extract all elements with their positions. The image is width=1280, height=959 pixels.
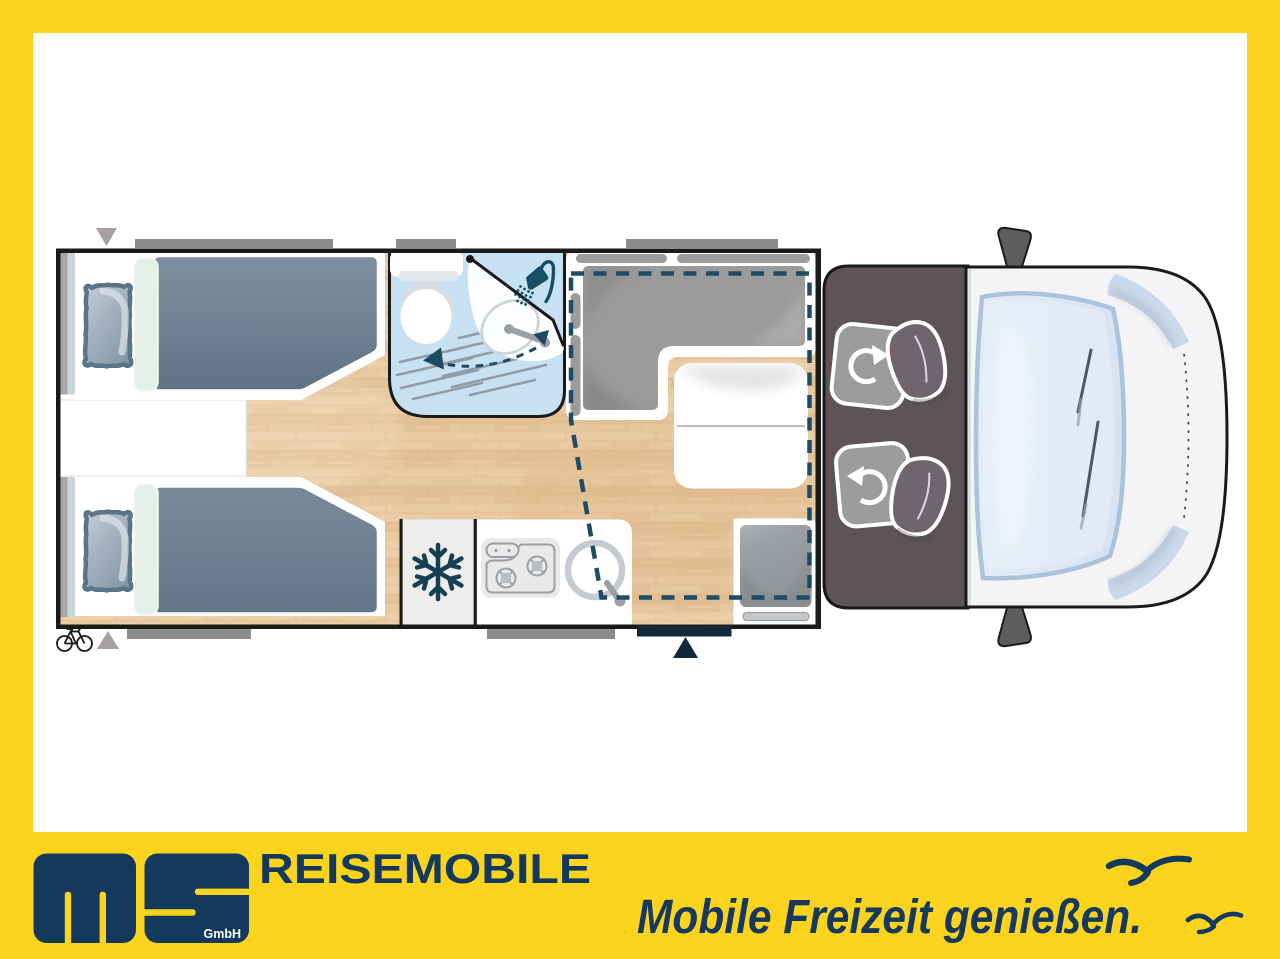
svg-text:Mobile Freizeit genießen.: Mobile Freizeit genießen. <box>637 891 1142 944</box>
svg-text:GmbH: GmbH <box>204 927 242 941</box>
svg-text:REISEMOBILE: REISEMOBILE <box>259 845 591 892</box>
